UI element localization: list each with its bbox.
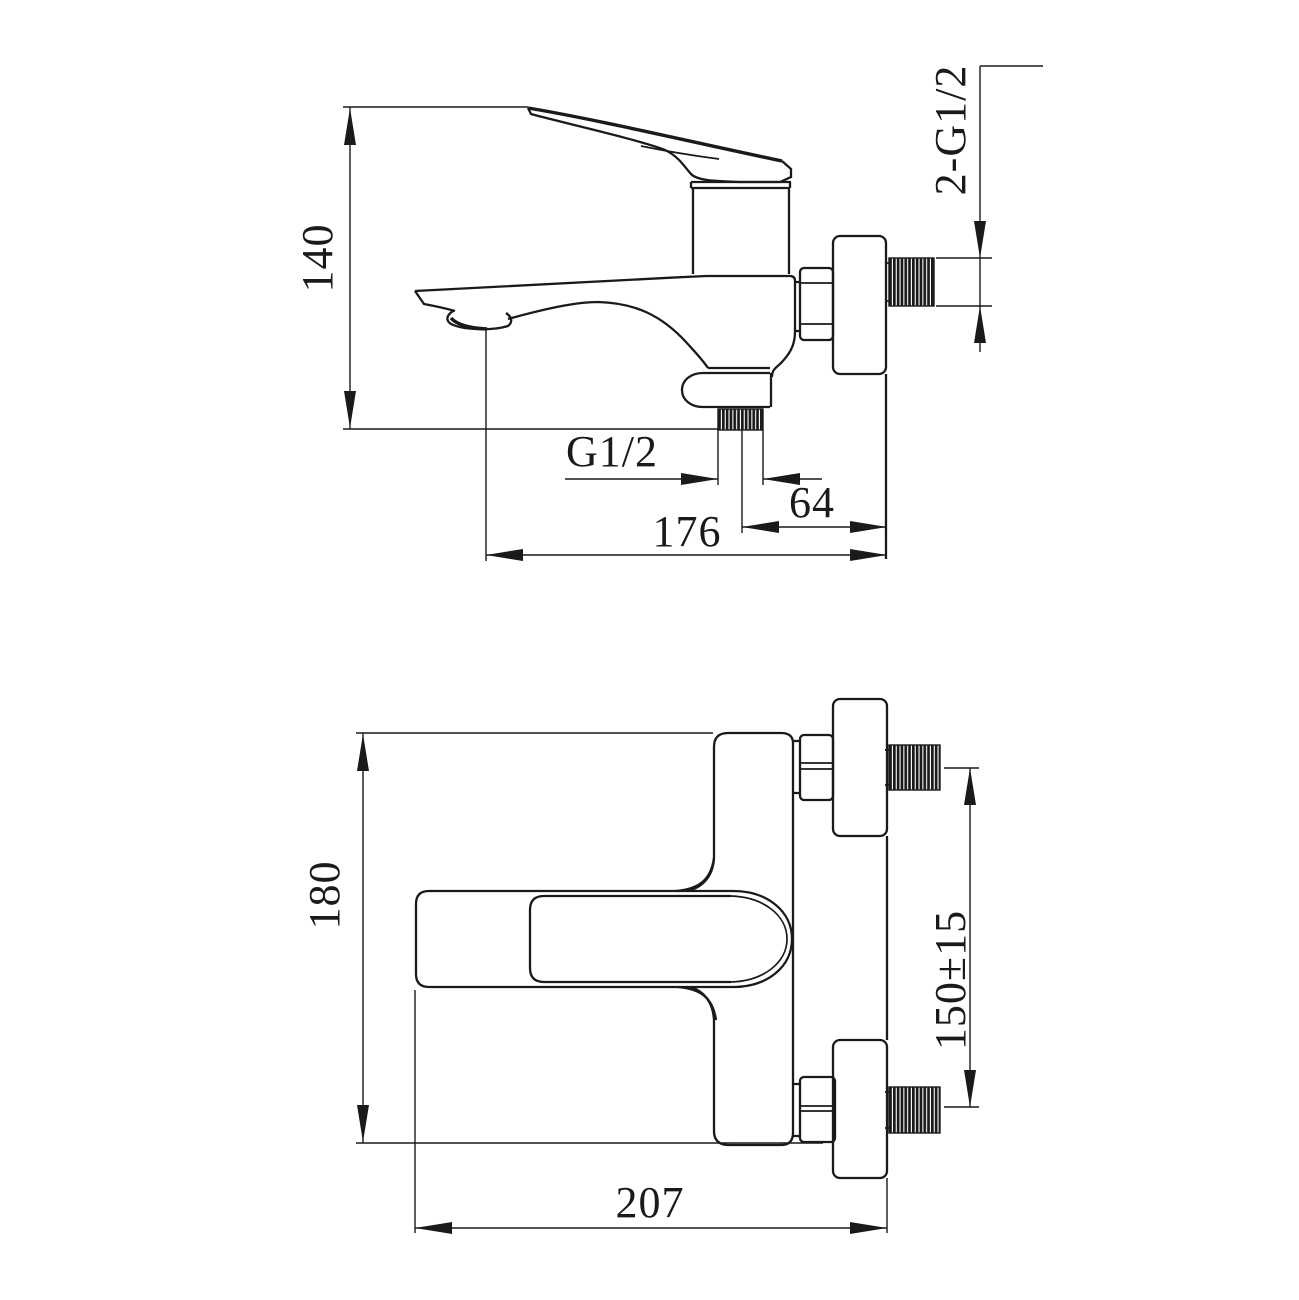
wall-flange-side xyxy=(833,236,886,374)
faucet-body-side xyxy=(691,182,795,377)
wall-flange-lower xyxy=(833,1040,887,1178)
dim-label-outlet-to-wall: 64 xyxy=(789,481,835,525)
wall-flange-upper xyxy=(833,699,887,836)
hex-nut-lower xyxy=(800,1077,835,1142)
shower-outlet xyxy=(682,373,771,430)
outlet-thread xyxy=(718,409,763,430)
hex-nut-side xyxy=(800,268,833,340)
dim-label-outlet-thread: G1/2 xyxy=(566,430,658,474)
wall-connection-lower xyxy=(793,1040,940,1178)
technical-drawing-page: 140 2-G1/2 G1/2 64 176 180 150±15 207 xyxy=(0,0,1299,1300)
front-view xyxy=(356,699,979,1234)
dim-label-width: 207 xyxy=(616,1181,685,1225)
handle-lever-side xyxy=(528,108,791,182)
dim-label-front-height: 180 xyxy=(303,861,347,930)
dim-label-side-height: 140 xyxy=(296,224,340,293)
wall-thread-lower xyxy=(889,1087,940,1133)
hex-nut-upper xyxy=(800,735,833,800)
dim-label-wall-thread: 2-G1/2 xyxy=(929,65,973,196)
dim-label-reach: 176 xyxy=(653,510,722,554)
wall-thread-side xyxy=(889,258,934,306)
wall-thread-upper xyxy=(889,745,940,790)
dim-label-inlet-spacing: 150±15 xyxy=(929,910,973,1050)
faucet-dimension-drawing xyxy=(0,0,1299,1300)
handle-lever-front xyxy=(416,858,792,1020)
spout xyxy=(415,276,708,368)
aerator-icon xyxy=(451,318,487,329)
wall-connection-upper xyxy=(793,699,940,836)
